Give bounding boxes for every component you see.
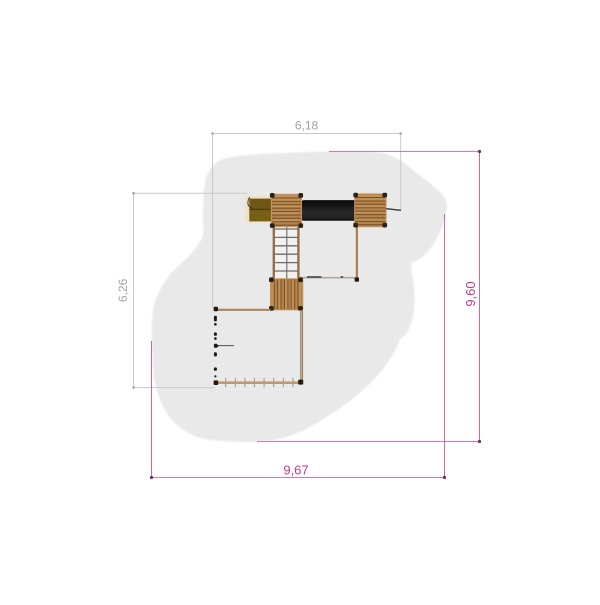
svg-text:9,67: 9,67 [283, 463, 308, 478]
svg-text:9,60: 9,60 [463, 281, 478, 306]
svg-text:6,18: 6,18 [295, 119, 319, 133]
svg-text:6,26: 6,26 [116, 278, 130, 302]
